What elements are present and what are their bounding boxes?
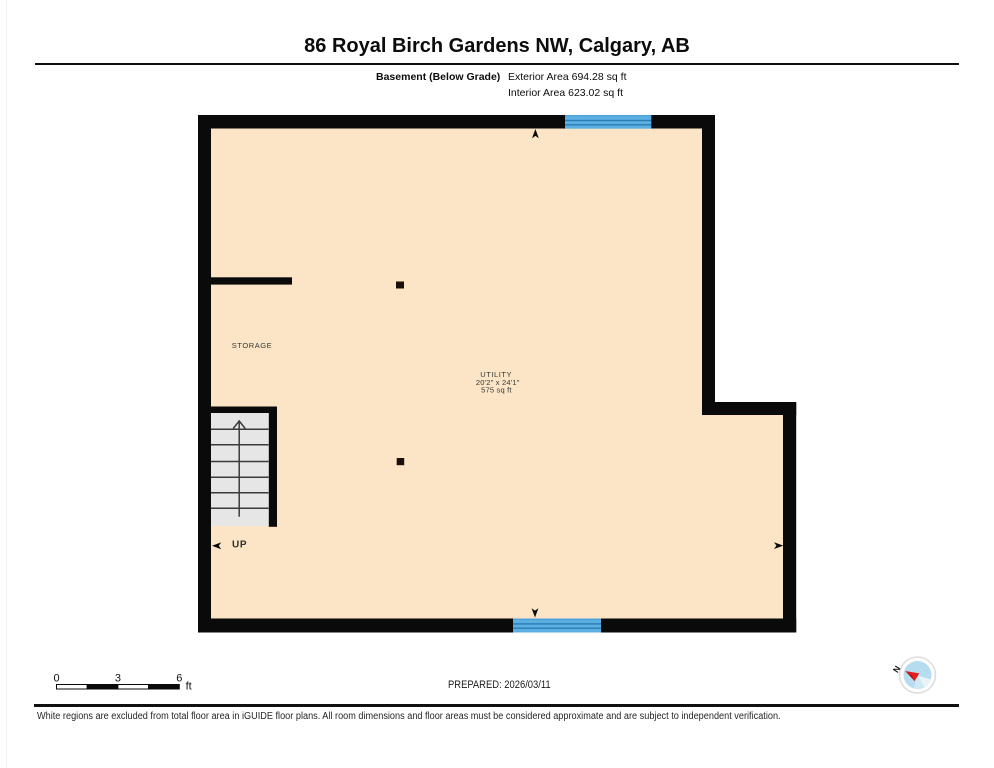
svg-text:3: 3 xyxy=(115,673,121,685)
svg-text:6: 6 xyxy=(176,673,182,685)
svg-text:UP: UP xyxy=(232,540,247,551)
svg-text:0: 0 xyxy=(53,673,59,685)
svg-text:ft: ft xyxy=(186,681,192,693)
svg-text:575 sq ft: 575 sq ft xyxy=(481,386,512,395)
svg-text:STORAGE: STORAGE xyxy=(232,341,272,350)
